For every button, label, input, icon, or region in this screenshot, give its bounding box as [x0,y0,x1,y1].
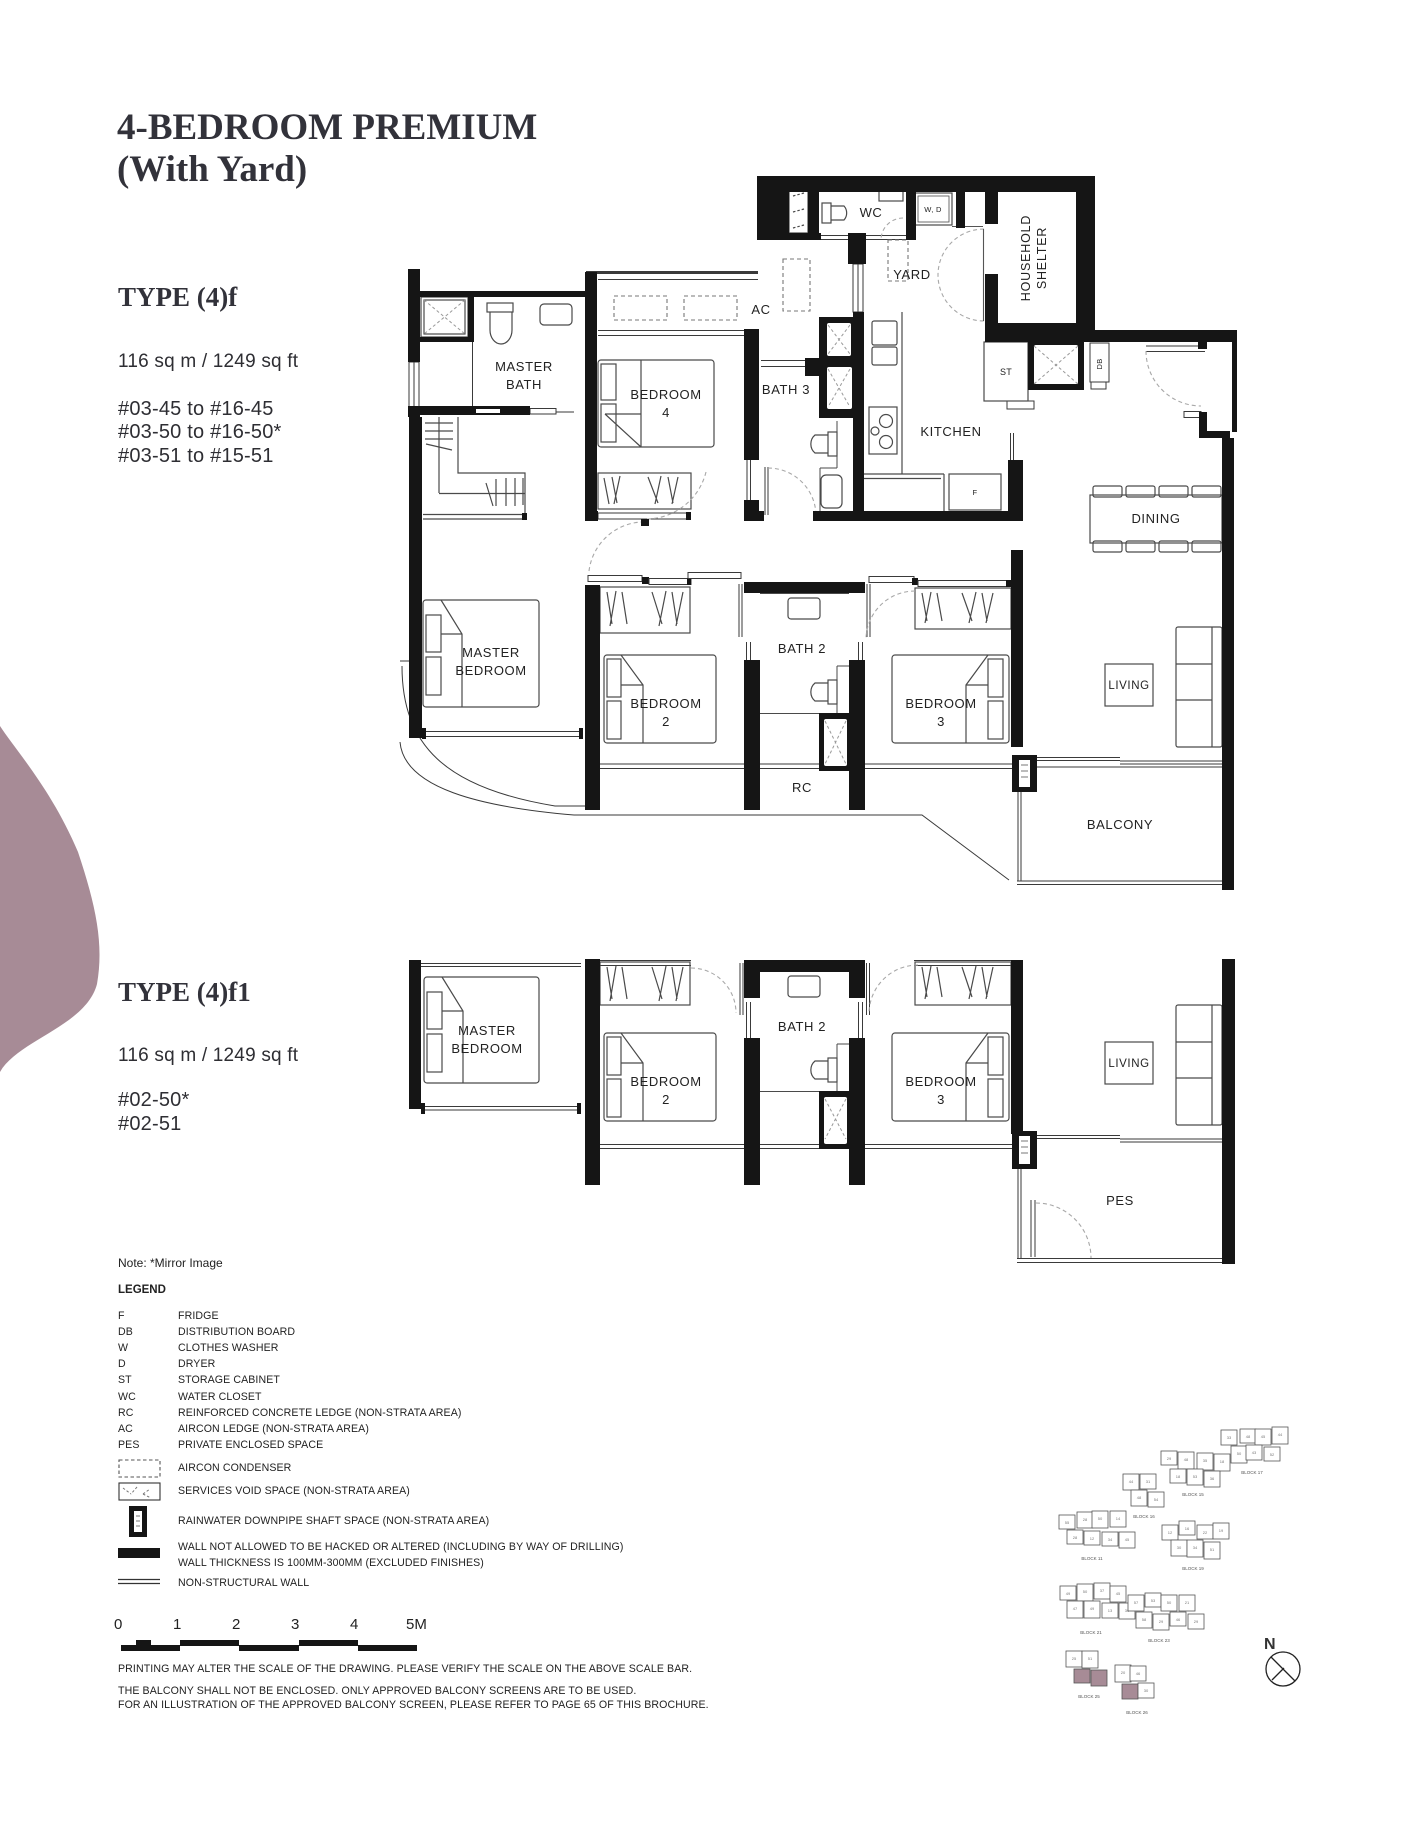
svg-text:54: 54 [1154,1497,1159,1502]
svg-text:DINING: DINING [1131,511,1180,526]
svg-text:31: 31 [1146,1479,1151,1484]
svg-text:57: 57 [1134,1600,1139,1605]
svg-text:14: 14 [1116,1516,1121,1521]
svg-text:19: 19 [1219,1528,1224,1533]
svg-text:BLOCK 16: BLOCK 16 [1133,1514,1155,1519]
svg-text:BALCONY: BALCONY [1087,817,1153,832]
svg-text:LIVING: LIVING [1108,680,1149,692]
svg-text:28: 28 [1073,1535,1078,1540]
svg-text:2: 2 [232,1616,240,1633]
svg-text:MASTER: MASTER [458,1023,516,1038]
svg-text:37: 37 [1100,1588,1105,1593]
svg-text:2: 2 [662,714,670,729]
svg-text:BEDROOM: BEDROOM [455,663,526,678]
svg-text:58: 58 [1142,1617,1147,1622]
svg-text:5M: 5M [406,1616,427,1633]
svg-text:KITCHEN: KITCHEN [920,424,981,439]
svg-text:HOUSEHOLD: HOUSEHOLD [1019,215,1033,301]
svg-text:ST: ST [1000,367,1012,377]
svg-text:48: 48 [1184,1457,1189,1462]
svg-text:28: 28 [1083,1517,1088,1522]
svg-text:BLOCK 19: BLOCK 19 [1182,1566,1204,1571]
svg-text:30: 30 [1177,1545,1182,1550]
svg-text:49: 49 [1090,1606,1095,1611]
svg-text:MASTER: MASTER [462,645,520,660]
svg-text:21: 21 [1185,1600,1190,1605]
svg-text:13: 13 [1108,1608,1113,1613]
svg-text:3: 3 [937,1092,945,1107]
svg-text:50: 50 [1083,1589,1088,1594]
svg-text:20: 20 [1121,1670,1126,1675]
svg-text:34: 34 [1108,1537,1113,1542]
svg-text:BLOCK 17: BLOCK 17 [1241,1470,1263,1475]
svg-text:BATH: BATH [506,377,542,392]
svg-text:25: 25 [1072,1656,1077,1661]
svg-text:18: 18 [1176,1474,1181,1479]
svg-text:4: 4 [662,405,670,420]
svg-text:52: 52 [1270,1452,1275,1457]
svg-text:29: 29 [1167,1456,1172,1461]
svg-text:50: 50 [1098,1516,1103,1521]
svg-text:AC: AC [751,302,770,317]
svg-text:BEDROOM: BEDROOM [451,1041,522,1056]
svg-text:51: 51 [1210,1547,1215,1552]
svg-text:49: 49 [1066,1591,1071,1596]
svg-text:BEDROOM: BEDROOM [905,696,976,711]
svg-text:DB: DB [1095,358,1104,369]
svg-text:45: 45 [1261,1434,1266,1439]
svg-text:PES: PES [1106,1193,1134,1208]
svg-text:44: 44 [1129,1479,1134,1484]
svg-text:YARD: YARD [893,267,931,282]
svg-text:3: 3 [291,1616,299,1633]
svg-text:1: 1 [173,1616,181,1633]
svg-text:LIVING: LIVING [1108,1058,1149,1070]
svg-text:51: 51 [1088,1656,1093,1661]
svg-text:45: 45 [1116,1591,1121,1596]
svg-text:48: 48 [1246,1434,1251,1439]
svg-text:4: 4 [350,1616,358,1633]
svg-text:W, D: W, D [924,205,942,214]
svg-text:50: 50 [1167,1600,1172,1605]
svg-text:BEDROOM: BEDROOM [630,696,701,711]
svg-text:45: 45 [1125,1537,1130,1542]
svg-text:BATH 3: BATH 3 [762,382,810,397]
svg-text:BEDROOM: BEDROOM [630,387,701,402]
svg-text:29: 29 [1159,1619,1164,1624]
svg-text:BATH 2: BATH 2 [778,641,826,656]
svg-text:46: 46 [1176,1617,1181,1622]
svg-text:BLOCK 15: BLOCK 15 [1182,1492,1204,1497]
svg-text:30: 30 [1144,1688,1149,1693]
svg-text:55: 55 [1065,1520,1070,1525]
svg-text:SHELTER: SHELTER [1035,227,1049,289]
svg-text:MASTER: MASTER [495,359,553,374]
svg-text:3: 3 [937,714,945,729]
svg-text:RC: RC [792,780,812,795]
svg-text:BEDROOM: BEDROOM [905,1074,976,1089]
svg-text:47: 47 [1073,1606,1078,1611]
svg-text:BLOCK 21: BLOCK 21 [1080,1630,1102,1635]
svg-text:BATH 2: BATH 2 [778,1019,826,1034]
svg-text:F: F [973,488,978,497]
svg-text:BEDROOM: BEDROOM [630,1074,701,1089]
svg-text:18: 18 [1220,1459,1225,1464]
svg-text:34: 34 [1193,1545,1198,1550]
svg-text:53: 53 [1193,1474,1198,1479]
svg-text:36: 36 [1210,1476,1215,1481]
svg-text:16: 16 [1185,1526,1190,1531]
svg-text:50: 50 [1237,1451,1242,1456]
svg-text:12: 12 [1090,1536,1095,1541]
svg-text:BLOCK 25: BLOCK 25 [1078,1694,1100,1699]
svg-text:35: 35 [1203,1458,1208,1463]
svg-text:BLOCK 26: BLOCK 26 [1126,1710,1148,1715]
svg-text:33: 33 [1227,1435,1232,1440]
svg-text:29: 29 [1194,1619,1199,1624]
svg-text:WC: WC [860,205,883,220]
svg-text:12: 12 [1168,1530,1173,1535]
svg-text:0: 0 [114,1616,122,1633]
svg-text:N: N [1264,1636,1276,1653]
svg-text:46: 46 [1136,1671,1141,1676]
svg-text:22: 22 [1203,1530,1208,1535]
svg-text:BLOCK 23: BLOCK 23 [1148,1638,1170,1643]
svg-text:48: 48 [1137,1495,1142,1500]
svg-text:44: 44 [1278,1432,1283,1437]
svg-text:43: 43 [1252,1450,1257,1455]
svg-text:53: 53 [1151,1598,1156,1603]
svg-text:2: 2 [662,1092,670,1107]
svg-text:BLOCK 11: BLOCK 11 [1081,1556,1103,1561]
